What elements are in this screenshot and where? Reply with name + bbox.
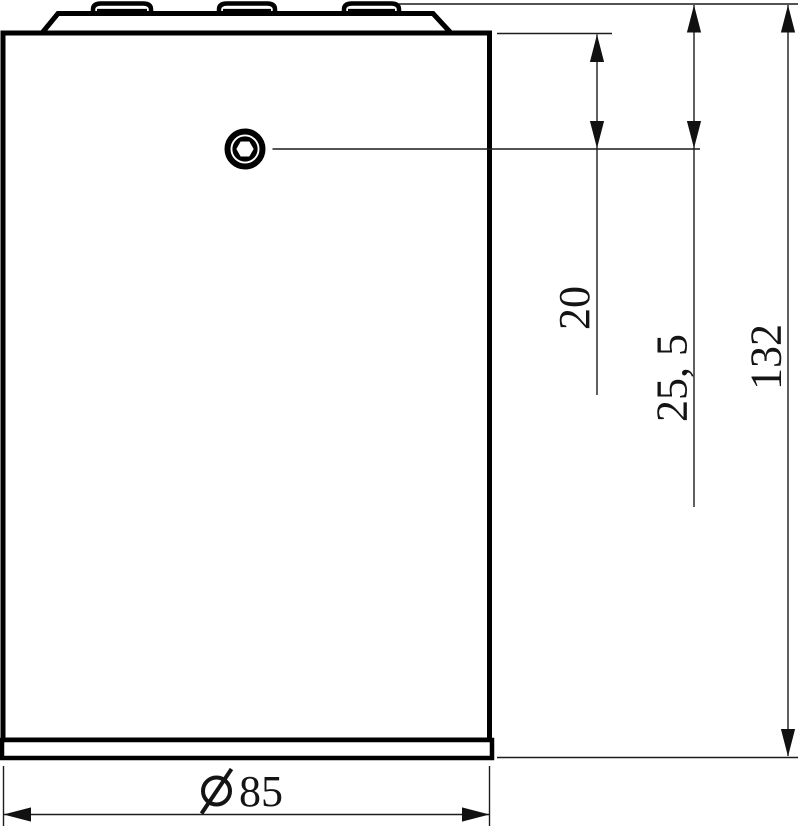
arrow-25-5-down (687, 121, 701, 148)
hex-socket-screw-icon (228, 132, 263, 167)
screw-hex-socket (235, 140, 256, 158)
part-outline (2, 4, 492, 759)
arrow-20-down (590, 121, 604, 148)
arrow-132-down (781, 729, 795, 757)
dim-label-diameter: 85 (239, 767, 283, 816)
arrow-20-up (590, 35, 604, 63)
dim-label-20: 20 (550, 286, 599, 330)
base-plate (2, 740, 492, 758)
part-side-view-drawing: 20 25, 5 132 85 (0, 0, 800, 827)
dim-label-132: 132 (742, 324, 791, 390)
top-cap (42, 14, 451, 34)
dim-label-25-5: 25, 5 (648, 334, 697, 422)
arrow-25-5-up (687, 5, 701, 33)
arrow-132-up (781, 5, 795, 33)
technical-drawing-canvas: 20 25, 5 132 85 (0, 0, 800, 827)
arrow-diameter-left (4, 807, 32, 821)
arrow-diameter-right (462, 807, 490, 821)
diameter-symbol-icon (202, 769, 232, 814)
